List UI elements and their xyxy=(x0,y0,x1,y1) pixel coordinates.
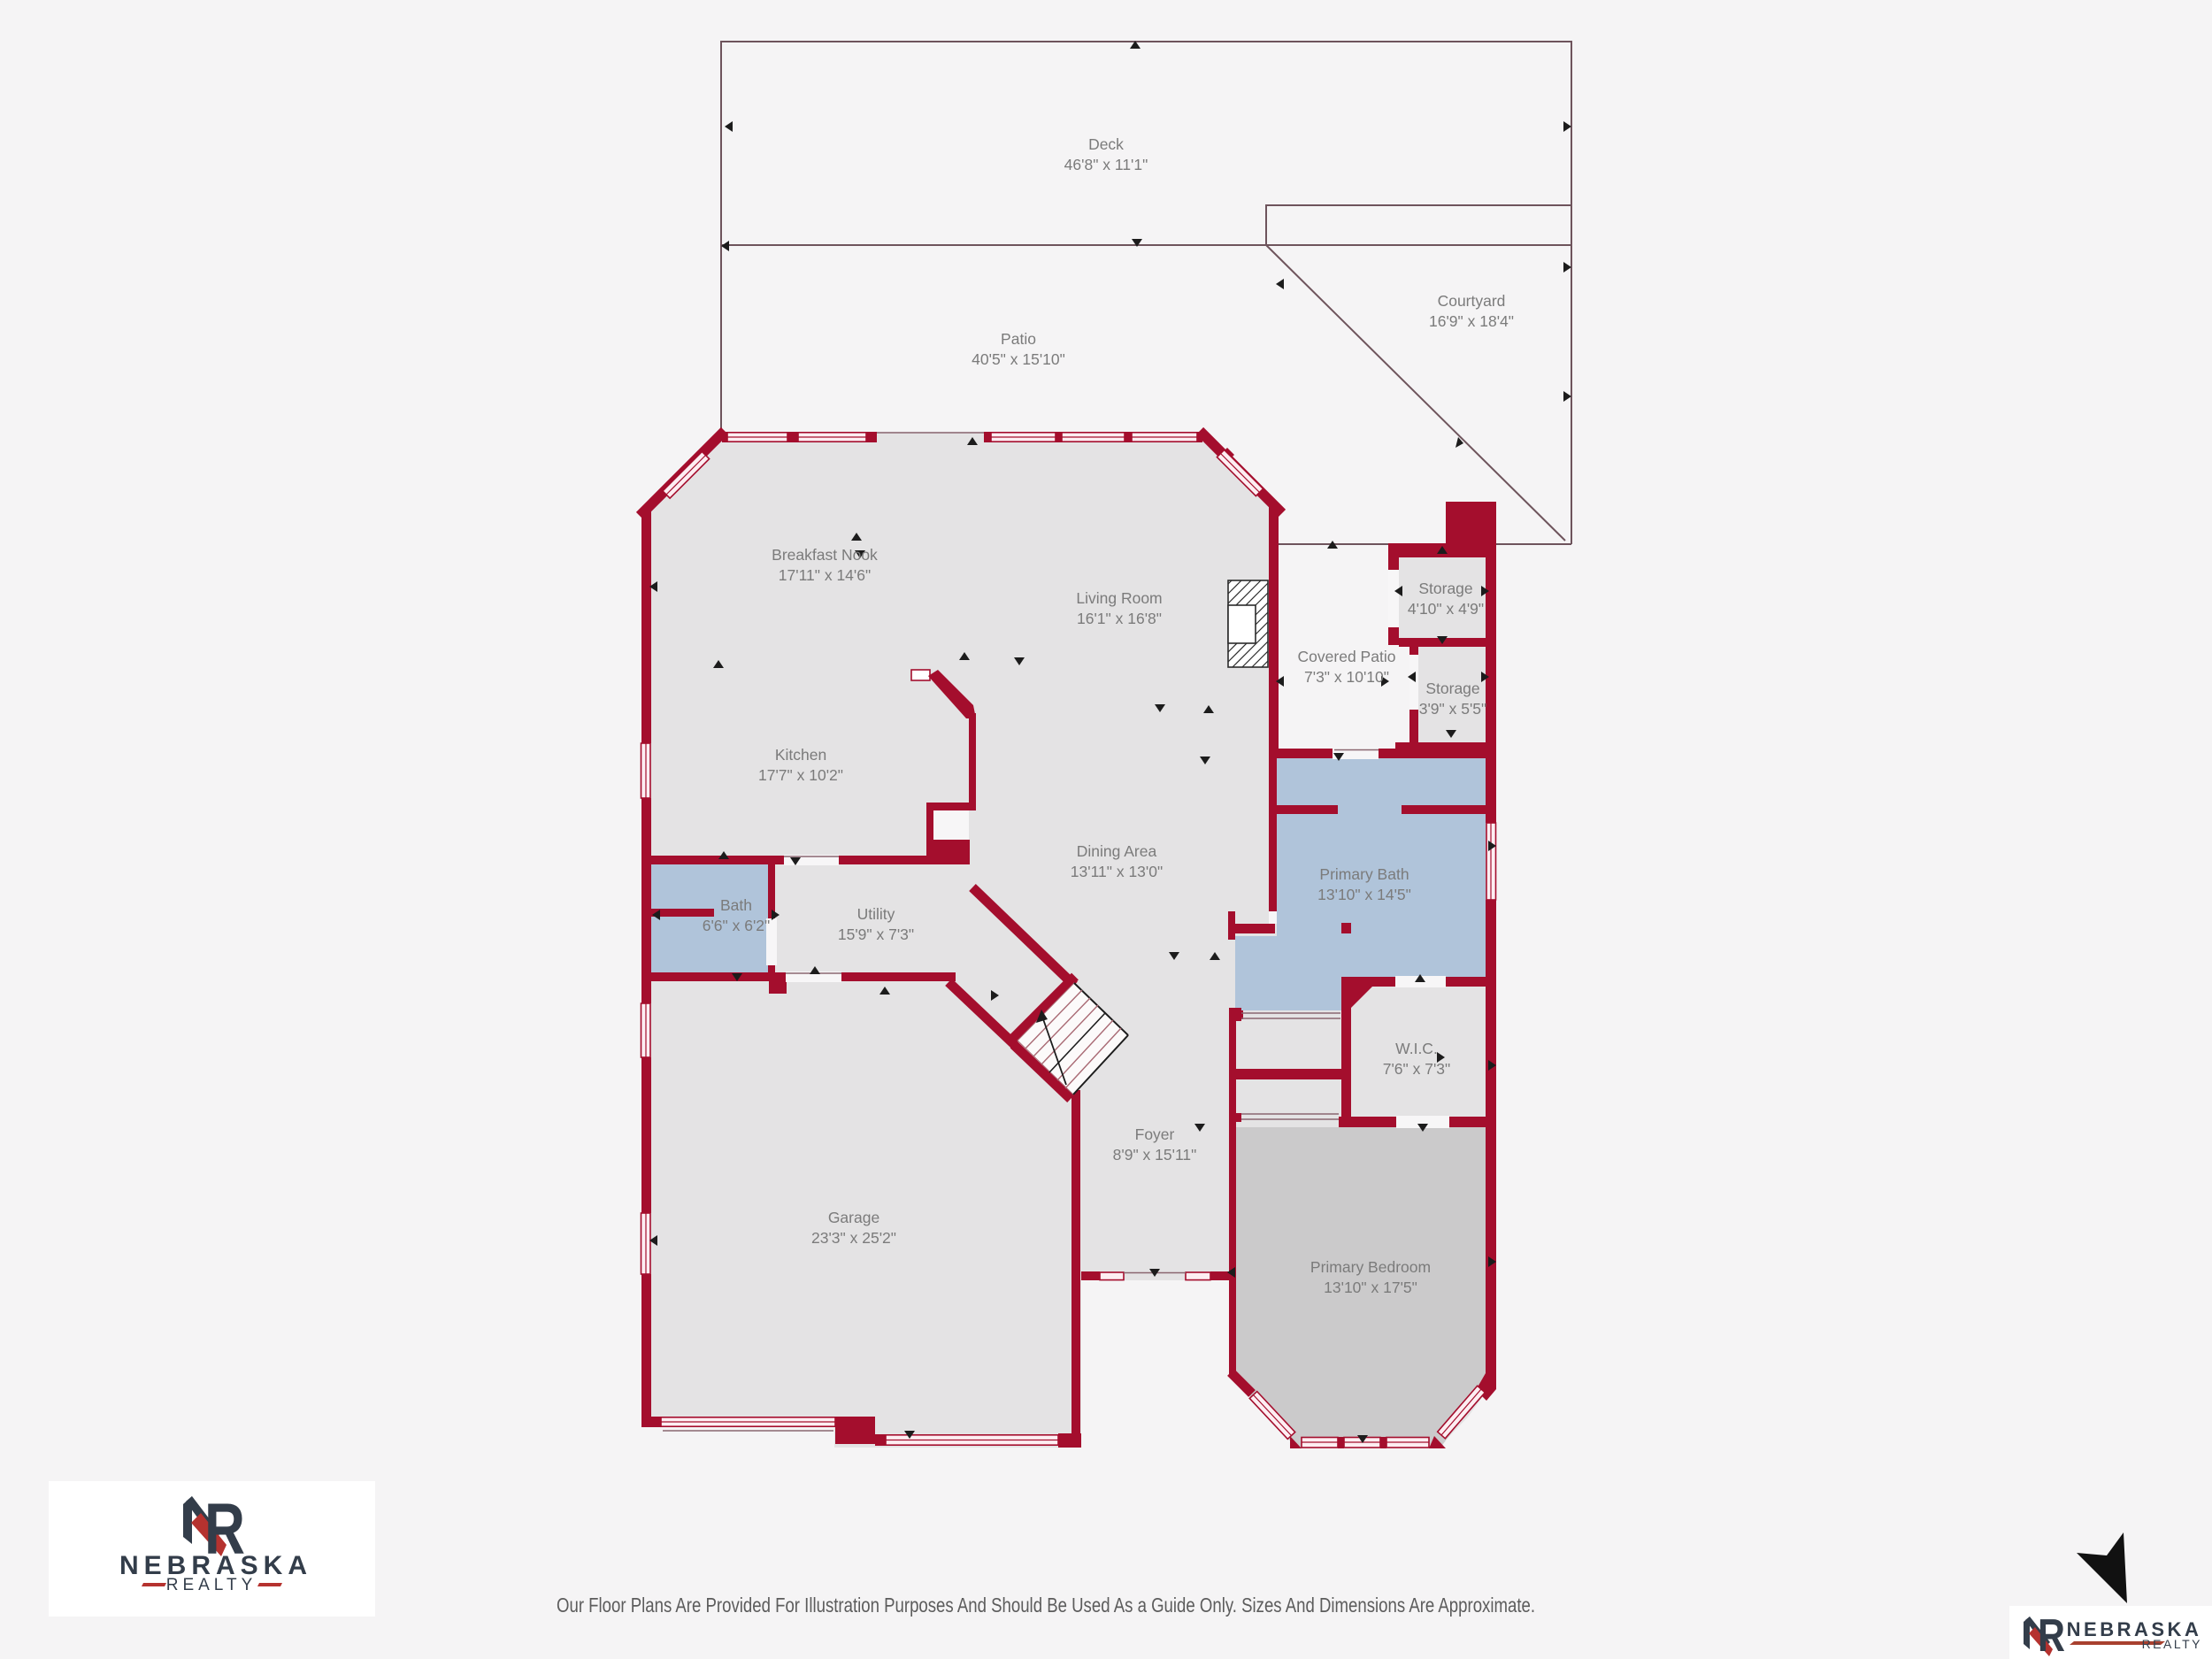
svg-text:Primary Bath: Primary Bath xyxy=(1319,865,1409,883)
svg-text:46'8" x 11'1": 46'8" x 11'1" xyxy=(1064,156,1148,173)
svg-text:Breakfast Nook: Breakfast Nook xyxy=(772,546,878,564)
svg-text:Foyer: Foyer xyxy=(1135,1125,1175,1143)
svg-text:8'9" x 15'11": 8'9" x 15'11" xyxy=(1113,1146,1197,1164)
svg-text:Deck: Deck xyxy=(1088,135,1124,153)
svg-text:Patio: Patio xyxy=(1001,330,1036,348)
svg-text:13'10" x 14'5": 13'10" x 14'5" xyxy=(1317,886,1411,903)
svg-text:Utility: Utility xyxy=(857,905,895,923)
svg-text:16'1" x 16'8": 16'1" x 16'8" xyxy=(1077,610,1162,627)
svg-text:6'6" x 6'2": 6'6" x 6'2" xyxy=(703,917,771,934)
svg-text:4'10" x 4'9": 4'10" x 4'9" xyxy=(1408,600,1484,618)
svg-text:Courtyard: Courtyard xyxy=(1438,292,1506,310)
svg-text:3'9" x 5'5": 3'9" x 5'5" xyxy=(1419,700,1487,718)
svg-text:REALTY: REALTY xyxy=(166,1576,257,1594)
svg-text:Garage: Garage xyxy=(828,1209,879,1226)
svg-text:17'11" x 14'6": 17'11" x 14'6" xyxy=(779,566,871,584)
svg-text:Storage: Storage xyxy=(1425,680,1479,697)
svg-text:Covered Patio: Covered Patio xyxy=(1298,648,1396,665)
svg-text:Storage: Storage xyxy=(1418,580,1472,597)
svg-text:Dining Area: Dining Area xyxy=(1077,842,1157,860)
svg-text:Kitchen: Kitchen xyxy=(775,746,826,764)
svg-text:R: R xyxy=(2038,1610,2065,1659)
svg-text:REALTY: REALTY xyxy=(2142,1637,2202,1651)
svg-text:16'9" x 18'4": 16'9" x 18'4" xyxy=(1429,312,1514,330)
svg-text:Primary Bedroom: Primary Bedroom xyxy=(1310,1258,1431,1276)
svg-text:17'7" x 10'2": 17'7" x 10'2" xyxy=(758,766,843,784)
svg-text:13'10" x 17'5": 13'10" x 17'5" xyxy=(1324,1279,1417,1296)
svg-text:Our Floor Plans Are Provided F: Our Floor Plans Are Provided For Illustr… xyxy=(557,1594,1535,1617)
svg-text:13'11" x 13'0": 13'11" x 13'0" xyxy=(1071,863,1163,880)
svg-text:Bath: Bath xyxy=(720,896,752,914)
svg-text:Living Room: Living Room xyxy=(1076,589,1162,607)
svg-text:W.I.C.: W.I.C. xyxy=(1395,1040,1438,1057)
svg-text:7'6" x 7'3": 7'6" x 7'3" xyxy=(1383,1060,1451,1078)
svg-text:40'5" x 15'10": 40'5" x 15'10" xyxy=(972,350,1065,368)
svg-text:15'9" x 7'3": 15'9" x 7'3" xyxy=(838,926,914,943)
svg-text:23'3" x 25'2": 23'3" x 25'2" xyxy=(811,1229,896,1247)
svg-text:7'3" x 10'10": 7'3" x 10'10" xyxy=(1304,668,1389,686)
